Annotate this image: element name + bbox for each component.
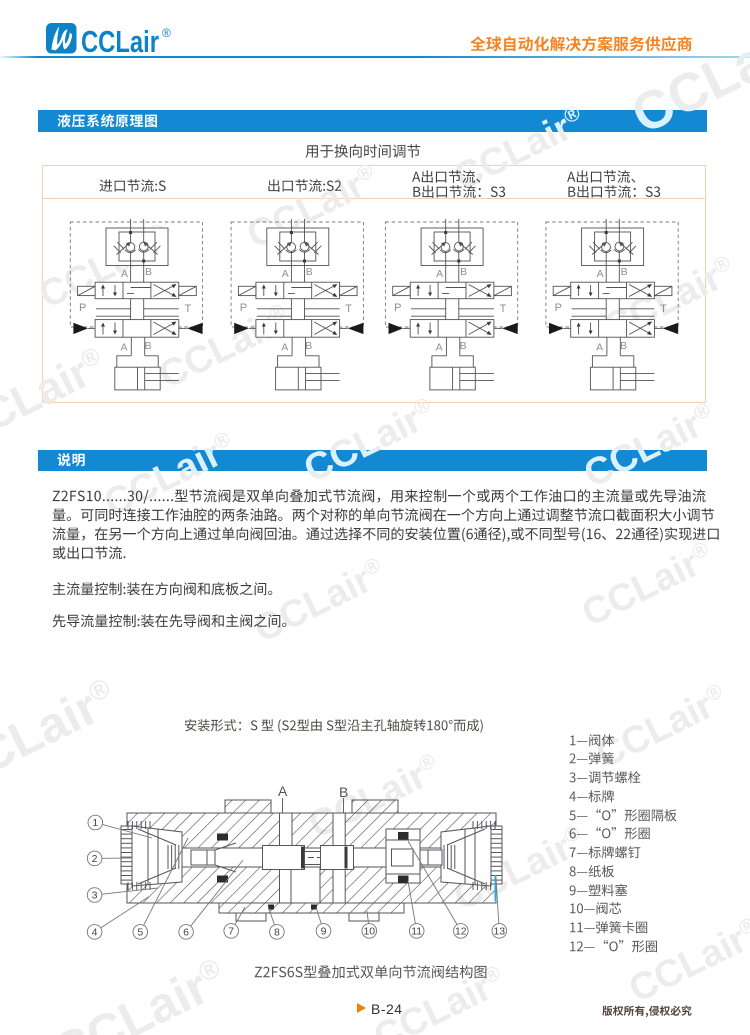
svg-text:1: 1	[92, 817, 98, 829]
svg-text:3: 3	[92, 890, 98, 902]
svg-text:8: 8	[274, 927, 280, 939]
svg-text:9: 9	[321, 926, 327, 938]
svg-text:4: 4	[92, 927, 98, 939]
svg-text:A: A	[278, 783, 288, 799]
svg-text:13: 13	[493, 926, 505, 938]
svg-text:B: B	[339, 784, 348, 800]
svg-text:2: 2	[92, 853, 98, 865]
svg-text:5: 5	[137, 927, 143, 939]
svg-text:11: 11	[411, 926, 422, 938]
svg-text:12: 12	[455, 926, 467, 938]
svg-text:10: 10	[363, 926, 375, 938]
svg-text:7: 7	[228, 926, 234, 938]
svg-text:6: 6	[183, 927, 189, 939]
